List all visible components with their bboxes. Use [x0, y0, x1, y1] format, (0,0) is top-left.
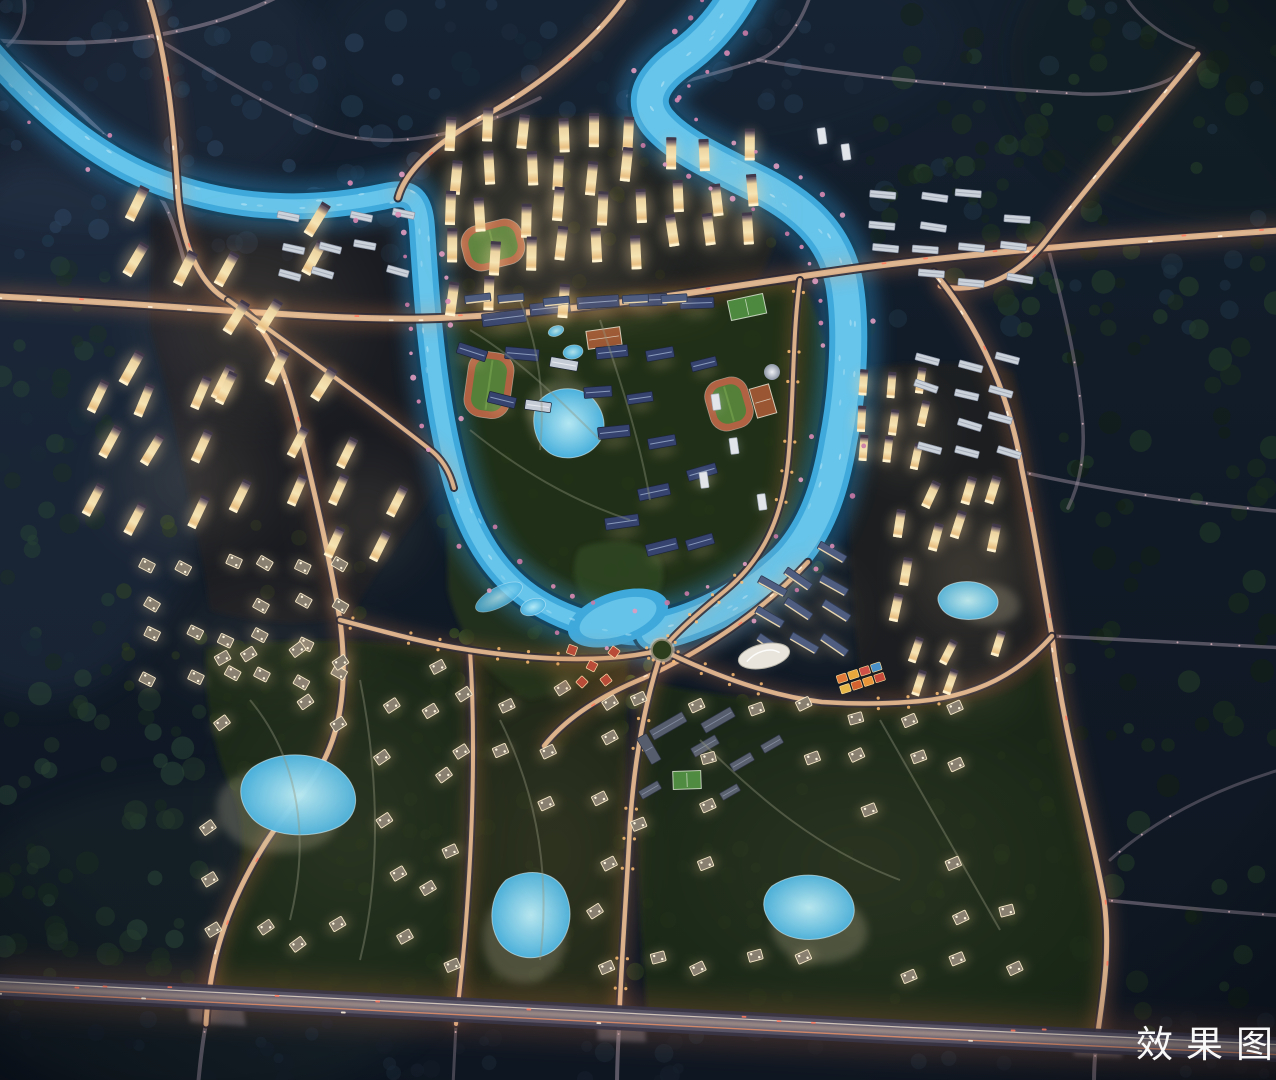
vignette [0, 0, 1276, 1080]
rendering-image: 效果图 [0, 0, 1276, 1080]
aerial-master-plan-rendering: 效果图 [0, 0, 1276, 1080]
watermark-caption: 效果图 [1136, 1023, 1276, 1066]
